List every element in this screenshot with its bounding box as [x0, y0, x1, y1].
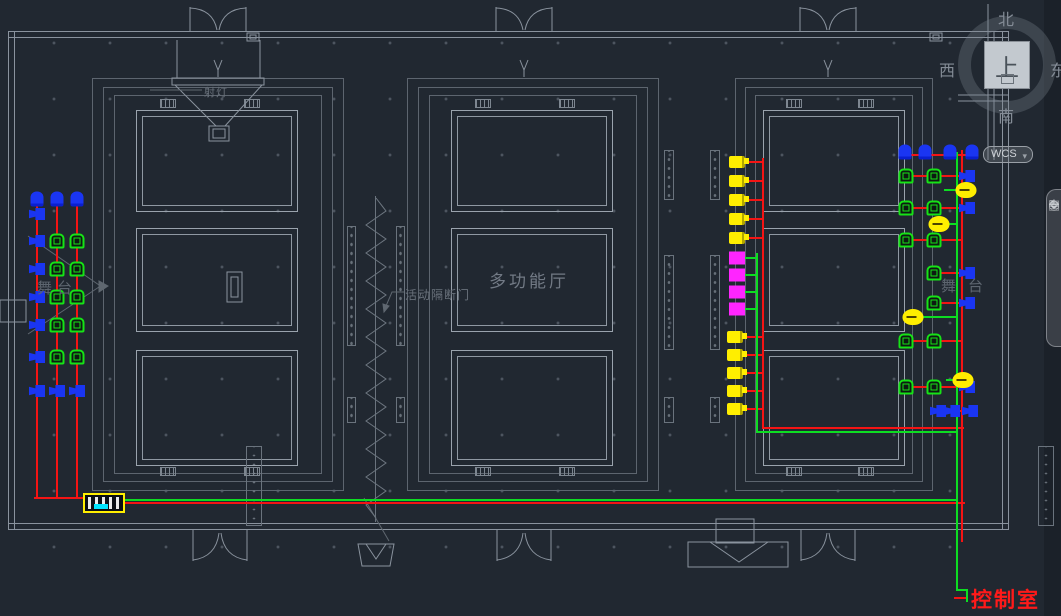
ui-layer: 上 北 西 东 南 WCS ▾ ◎✥⌖↻▤ — [0, 0, 1061, 616]
chevron-down-icon: ▾ — [1022, 149, 1027, 164]
viewcube-east-label[interactable]: 东 — [1050, 57, 1061, 81]
viewcube-south-label[interactable]: 南 — [998, 103, 1014, 127]
cad-viewport[interactable]: 舞台 舞台 多功能厅 活动隔断门 射灯 控制室 上 北 西 东 南 WCS ▾ … — [0, 0, 1061, 616]
wcs-dropdown[interactable]: WCS ▾ — [983, 146, 1033, 163]
viewcube-west-label[interactable]: 西 — [939, 57, 955, 81]
viewcube-top-label: 上 — [995, 48, 1019, 83]
navigation-bar[interactable]: ◎✥⌖↻▤ — [1046, 189, 1061, 347]
show-motion-icon[interactable]: ▤ — [1047, 190, 1061, 219]
wcs-label: WCS — [991, 147, 1017, 162]
viewcube-top-face[interactable]: 上 — [984, 41, 1030, 89]
viewcube-north-label[interactable]: 北 — [998, 6, 1014, 30]
